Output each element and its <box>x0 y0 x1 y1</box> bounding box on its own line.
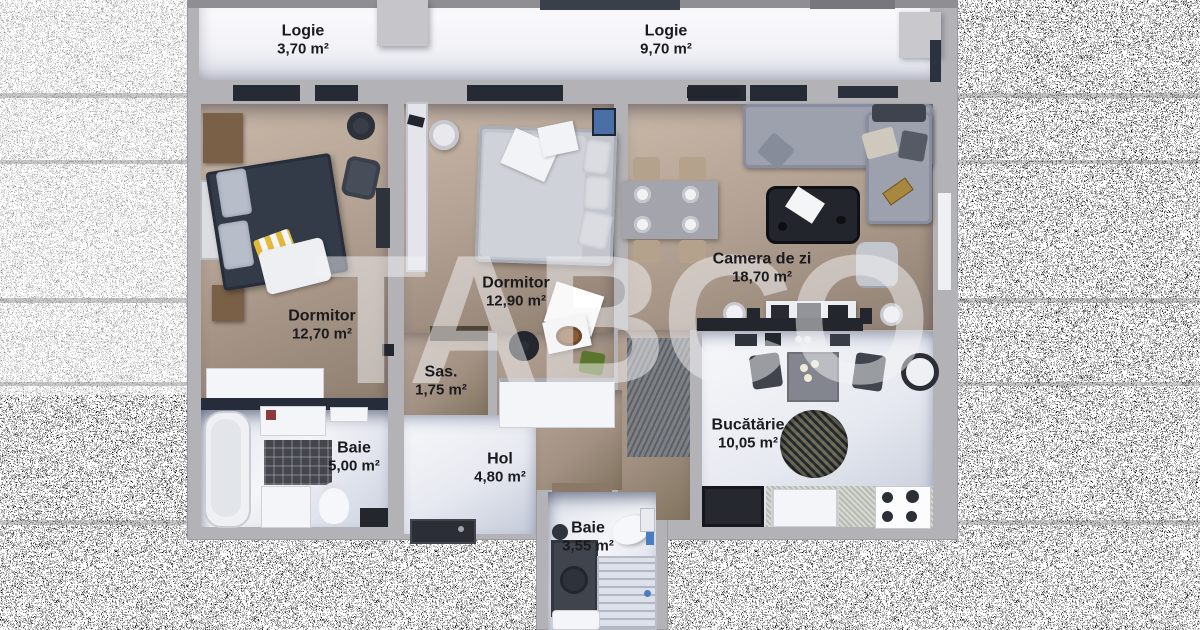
kitchen-appliance-2 <box>765 333 781 346</box>
bar-stool-right <box>880 303 903 326</box>
roof-strip-dark <box>540 0 680 10</box>
food-plate <box>556 326 582 346</box>
room-area: 9,70 m² <box>640 41 692 58</box>
room-name: Dormitor <box>288 308 356 326</box>
entrance-door-handle <box>458 526 464 532</box>
corridor-rug <box>627 338 690 457</box>
pouf <box>509 331 539 361</box>
kitchen-sink <box>771 489 839 527</box>
plate-1 <box>634 186 651 203</box>
room-label-dormitor-1: Dormitor 12,70 m² <box>288 308 356 343</box>
room-name: Hol <box>474 451 526 469</box>
sas-lintel <box>430 326 488 341</box>
kitchen-plate-1 <box>795 336 802 343</box>
stool-dark <box>347 112 375 140</box>
window-sill-dormitor-1 <box>206 368 324 400</box>
entrance-door <box>410 519 476 544</box>
ottoman <box>856 242 898 288</box>
wardrobe-strip <box>376 188 390 248</box>
window-logie-right <box>930 40 941 82</box>
baie2-blue-fitting <box>646 532 654 545</box>
tv-unit <box>687 87 739 98</box>
logie-divider-pillar <box>377 0 428 46</box>
dining-chair-1 <box>633 157 660 180</box>
room-label-baie-2: Baie 3,55 m² <box>562 520 614 555</box>
room-name: Dormitor <box>482 275 550 293</box>
shelf-strip <box>406 102 428 272</box>
room-area: 12,70 m² <box>288 326 356 343</box>
room-name: Logie <box>640 23 692 41</box>
washer-door <box>560 566 588 594</box>
room-name: Camera de zi <box>713 251 812 269</box>
bed2-pillow-1 <box>582 138 612 175</box>
room-area: 3,55 m² <box>562 538 614 555</box>
room-label-bucatarie: Bucătărie 10,05 m² <box>712 417 785 452</box>
window-3 <box>467 85 563 101</box>
room-label-hol: Hol 4,80 m² <box>474 451 526 486</box>
dining-chair-2 <box>679 157 706 180</box>
room-name: Bucătărie <box>712 417 785 435</box>
cup-2 <box>811 360 819 368</box>
sofa-chaise <box>866 112 932 224</box>
room-area: 10,05 m² <box>712 435 785 452</box>
room-area: 12,90 m² <box>482 293 550 310</box>
wall-clock <box>901 353 939 391</box>
room-label-logie-2: Logie 9,70 m² <box>640 23 692 58</box>
round-chair <box>429 120 459 150</box>
room-label-camera-de-zi: Camera de zi 18,70 m² <box>713 251 812 286</box>
table-decor-dot <box>778 222 787 231</box>
kitchen-plate-2 <box>804 336 811 343</box>
floorplan-canvas: TABCO Logie 3,70 m² Logie 9,70 m² Dormit… <box>0 0 1200 630</box>
plate-4 <box>682 216 699 233</box>
roof-strip-gray <box>810 0 895 9</box>
bath-corner-unit <box>360 508 388 527</box>
closet-dormitor-2 <box>499 378 615 428</box>
bath-cabinet <box>261 486 311 528</box>
window-2 <box>315 85 358 101</box>
picture-frame <box>592 108 616 136</box>
baie2-door-strip <box>552 483 612 492</box>
bathtub-inner <box>211 419 241 517</box>
sink-baie2 <box>552 610 600 630</box>
desk-top <box>203 113 243 163</box>
bath-mat <box>264 440 332 485</box>
sofa-pillow-3 <box>898 130 928 162</box>
room-name: Sas. <box>415 364 467 382</box>
window-living-right <box>938 193 951 290</box>
green-bag <box>578 350 605 376</box>
window-6 <box>838 86 898 98</box>
dining-chair-3 <box>633 240 660 263</box>
plate-3 <box>634 216 651 233</box>
room-area: 18,70 m² <box>713 269 812 286</box>
room-label-sas: Sas. 1,75 m² <box>415 364 467 399</box>
kitchen-bar-strip <box>697 318 863 331</box>
kitchen-appliance-1 <box>735 334 757 346</box>
kitchen-round-rug <box>780 410 848 478</box>
toilet-baie1 <box>319 488 349 524</box>
burner-1 <box>882 492 893 503</box>
shower-handle <box>644 590 651 597</box>
bath-shelf <box>330 407 368 422</box>
room-area: 3,70 m² <box>277 41 329 58</box>
room-area: 1,75 m² <box>415 382 467 399</box>
kitchen-chair-right <box>852 352 887 392</box>
cup-1 <box>800 364 808 372</box>
window-1 <box>233 85 300 101</box>
room-label-logie-1: Logie 3,70 m² <box>277 23 329 58</box>
room-name: Logie <box>277 23 329 41</box>
burner-2 <box>906 490 919 503</box>
door-frame-mark-1 <box>382 344 394 356</box>
dining-chair-4 <box>679 240 706 263</box>
room-name: Baie <box>562 520 614 538</box>
room-label-dormitor-2: Dormitor 12,90 m² <box>482 275 550 310</box>
table-decor-dot-2 <box>836 216 846 224</box>
room-area: 4,80 m² <box>474 469 526 486</box>
toilet-baie2-tank <box>640 508 655 532</box>
fridge <box>702 486 764 527</box>
sofa-bolster <box>872 104 926 122</box>
cup-3 <box>804 374 812 382</box>
burner-4 <box>906 511 917 522</box>
room-area: 5,00 m² <box>328 458 380 475</box>
room-label-baie-1: Baie 5,00 m² <box>328 440 380 475</box>
vanity-decor <box>266 410 276 420</box>
kitchen-appliance-3 <box>830 334 850 346</box>
kitchen-chair-left <box>749 352 783 390</box>
burner-3 <box>882 511 893 522</box>
room-name: Baie <box>328 440 380 458</box>
plate-2 <box>682 186 699 203</box>
bed2-pillow-2 <box>583 175 611 211</box>
window-5 <box>750 85 807 101</box>
